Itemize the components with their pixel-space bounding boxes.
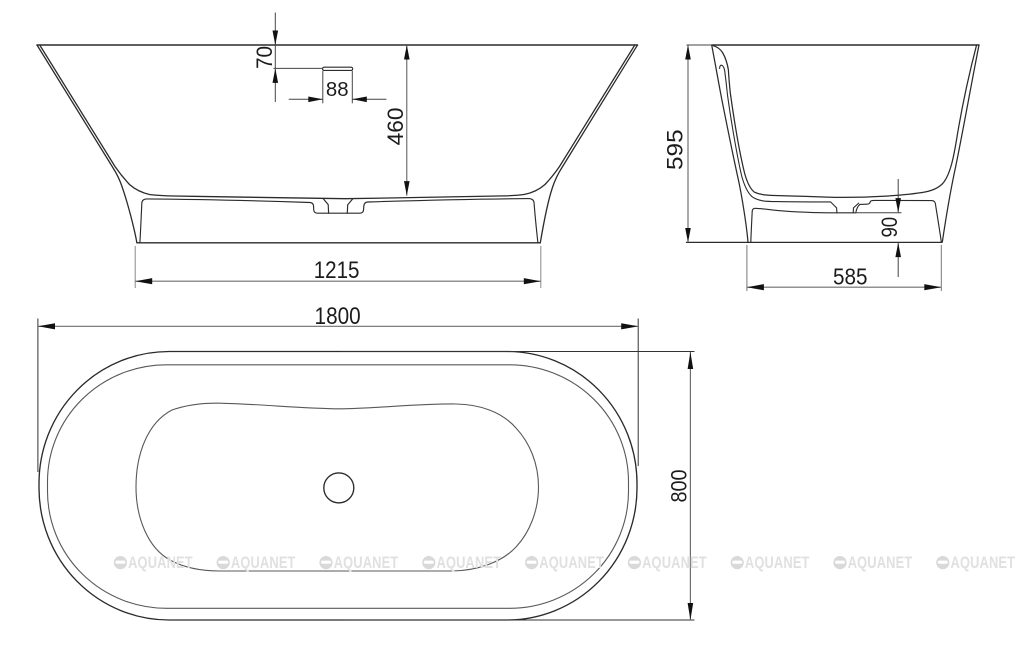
svg-text:595: 595 xyxy=(662,129,687,170)
svg-text:88: 88 xyxy=(326,79,349,101)
svg-text:AQUANET: AQUANET xyxy=(231,555,296,573)
svg-text:AQUANET: AQUANET xyxy=(334,555,399,573)
svg-text:1215: 1215 xyxy=(314,257,360,284)
svg-text:AQUANET: AQUANET xyxy=(745,555,810,573)
svg-text:90: 90 xyxy=(877,217,902,238)
svg-text:800: 800 xyxy=(667,470,692,503)
svg-text:AQUANET: AQUANET xyxy=(128,555,193,573)
svg-text:AQUANET: AQUANET xyxy=(951,555,1016,573)
svg-text:1800: 1800 xyxy=(315,303,361,330)
svg-text:AQUANET: AQUANET xyxy=(848,555,913,573)
svg-text:AQUANET: AQUANET xyxy=(437,555,502,573)
svg-text:AQUANET: AQUANET xyxy=(642,555,707,573)
svg-text:460: 460 xyxy=(383,108,408,146)
svg-text:585: 585 xyxy=(833,263,868,289)
svg-text:70: 70 xyxy=(252,46,277,69)
svg-text:AQUANET: AQUANET xyxy=(539,555,604,573)
